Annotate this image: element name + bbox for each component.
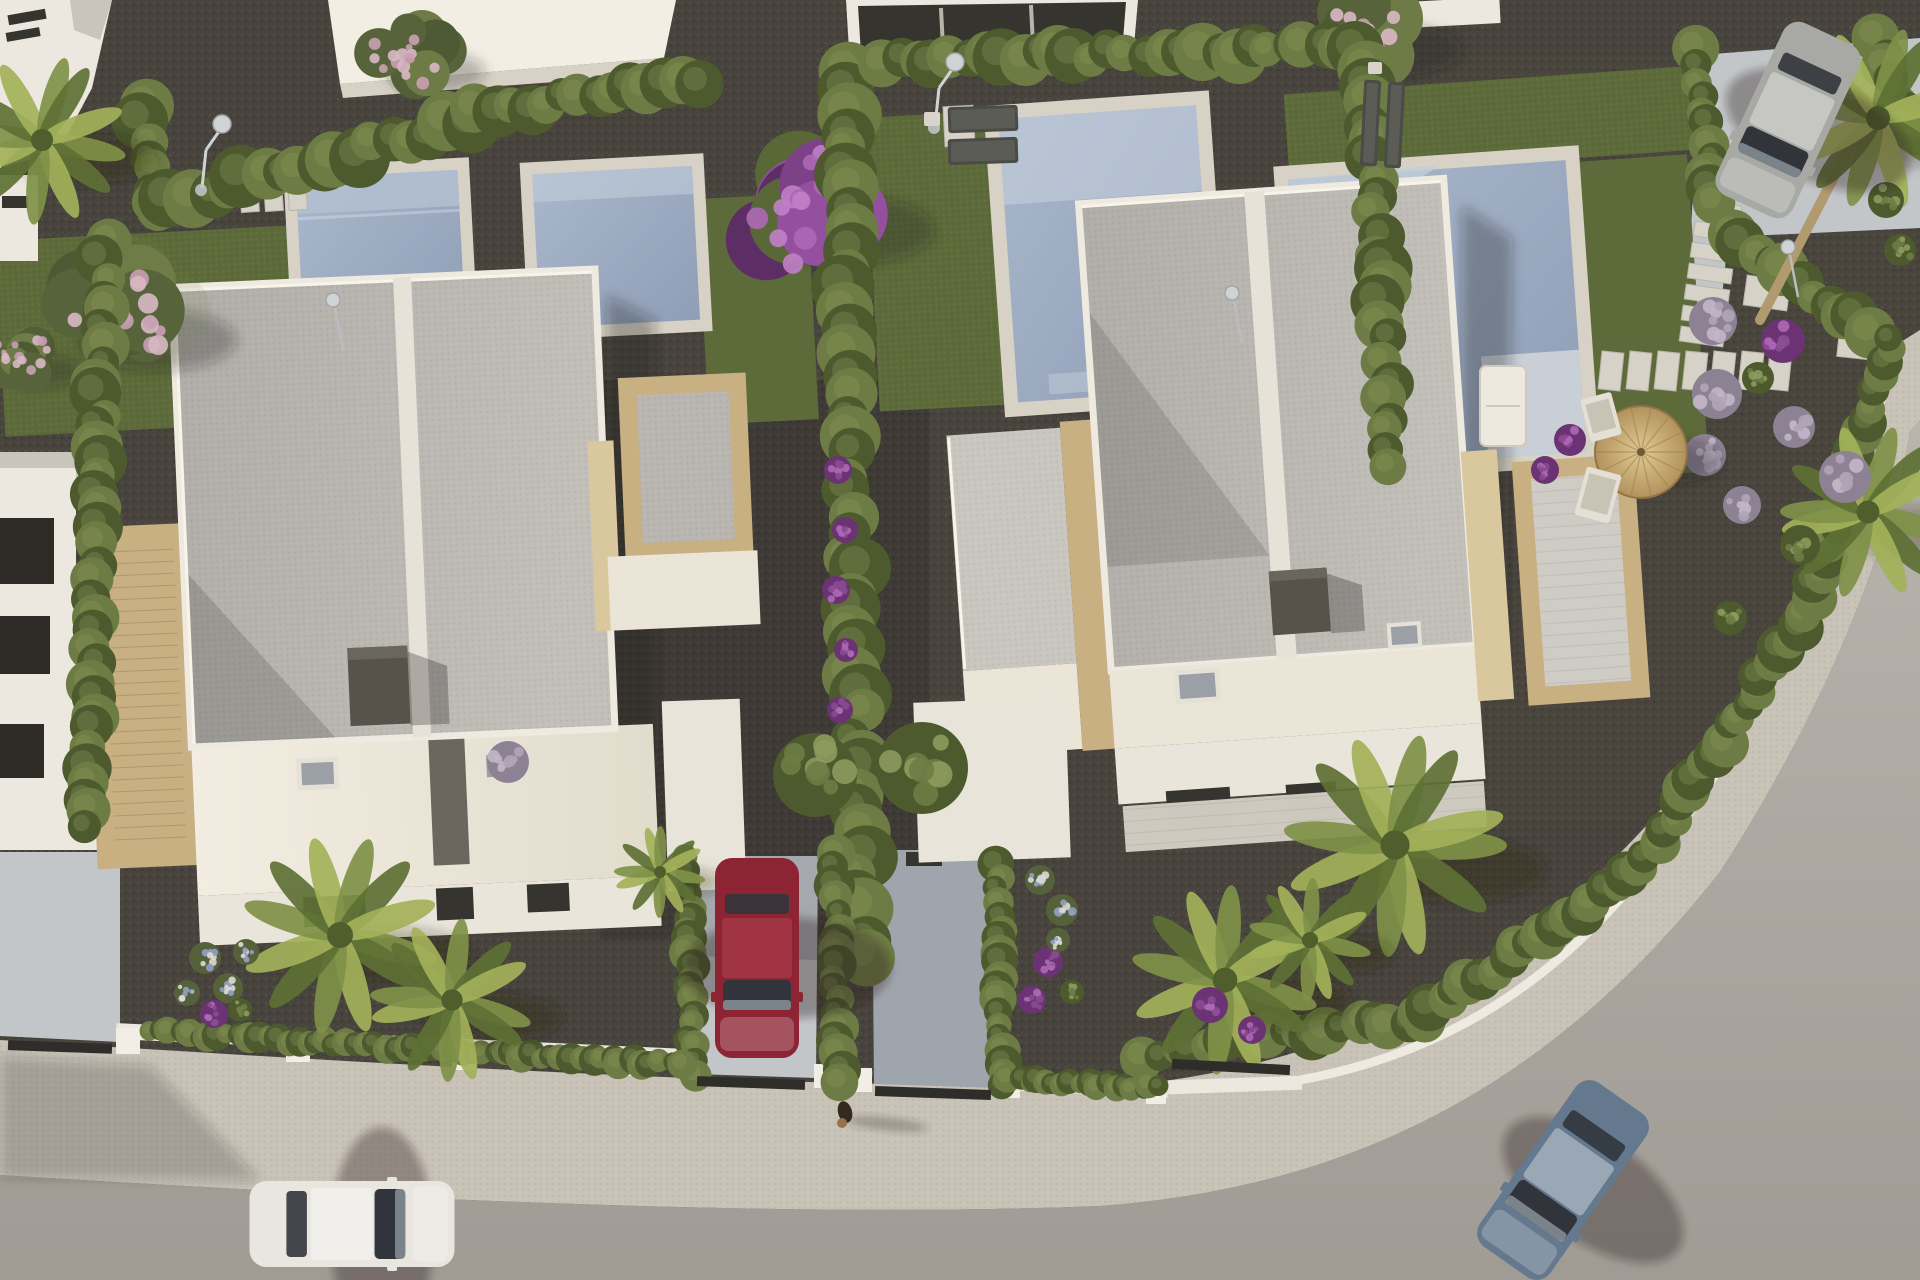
stepping-slab: [1626, 351, 1652, 391]
house1-side-terrace: [607, 550, 760, 630]
lavender-bush: [1773, 406, 1815, 448]
house1-terrace-roof: [191, 724, 659, 896]
side-table: [924, 112, 940, 126]
purple-bush: [1554, 424, 1586, 456]
purple-bush: [1192, 987, 1228, 1023]
sun-lounger: [948, 105, 1019, 133]
purple-bush: [827, 697, 853, 723]
purple-bush: [1531, 456, 1559, 484]
purple-bush: [822, 576, 850, 604]
lavender-bush: [487, 741, 529, 783]
whiteblue-bush: [174, 980, 200, 1006]
sun-lounger: [948, 137, 1019, 165]
driveway-left: [0, 852, 120, 1042]
stepping-slab: [1654, 351, 1680, 391]
lavender-bush: [1819, 451, 1871, 503]
lavender-bush: [1692, 369, 1742, 419]
green-bush: [1742, 362, 1774, 394]
green-bush: [876, 722, 968, 814]
purple-bush: [824, 456, 852, 484]
purple-bush: [834, 638, 858, 662]
outdoor-sofa: [1480, 366, 1526, 446]
aerial-villa-render: [0, 0, 1920, 1280]
aerial-render-stage: [0, 0, 1920, 1280]
whiteblue-bush: [233, 939, 259, 965]
purple-bush: [1761, 319, 1805, 363]
whiteblue-bush: [1046, 894, 1078, 926]
purple-bush: [200, 1000, 228, 1028]
side-table: [1368, 62, 1382, 74]
purple-bush: [1238, 1016, 1266, 1044]
whiteblue-bush: [1025, 865, 1055, 895]
green-bush: [773, 733, 857, 817]
stepping-slab: [1598, 351, 1624, 391]
green-bush: [1060, 980, 1084, 1004]
whiteblue-bush: [189, 942, 221, 974]
purple-bush: [1018, 986, 1046, 1014]
green-bush: [1780, 525, 1820, 565]
lavender-bush: [1723, 486, 1761, 524]
house1-roof-terrace: [618, 373, 754, 562]
green-bush: [228, 998, 252, 1022]
lavender-bush: [1689, 297, 1737, 345]
green-bush: [1713, 601, 1747, 635]
whiteblue-bush: [1046, 928, 1070, 952]
green-bush: [1884, 234, 1916, 266]
purple-bush: [832, 517, 858, 543]
